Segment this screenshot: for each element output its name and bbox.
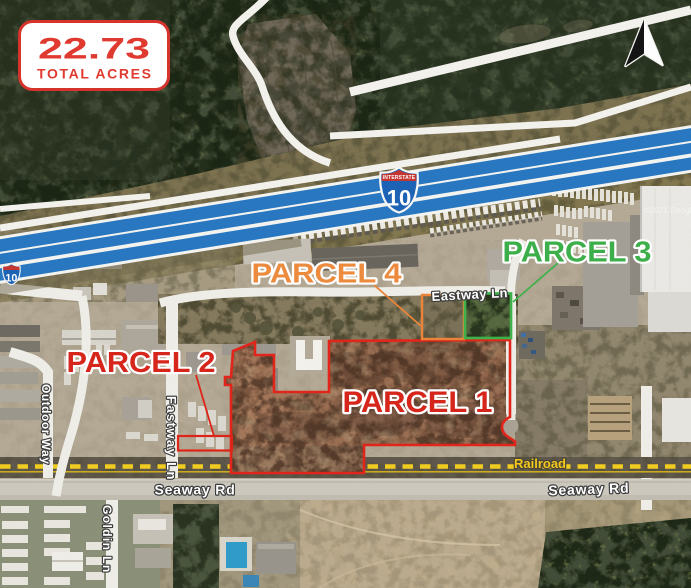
svg-text:PARCEL 4: PARCEL 4 <box>252 258 402 289</box>
svg-text:Seaway Rd: Seaway Rd <box>548 480 630 499</box>
svg-text:10: 10 <box>387 186 411 211</box>
svg-text:Goldin Ln: Goldin Ln <box>100 505 114 574</box>
svg-text:PARCEL 2: PARCEL 2 <box>67 347 216 379</box>
svg-text:PARCEL 1: PARCEL 1 <box>343 386 493 419</box>
svg-text:22.73: 22.73 <box>38 33 150 66</box>
svg-text:PARCEL 3: PARCEL 3 <box>503 237 652 269</box>
svg-text:Outdoor Way: Outdoor Way <box>39 384 53 464</box>
svg-text:Seaway Rd: Seaway Rd <box>154 482 235 498</box>
svg-text:10: 10 <box>5 272 17 284</box>
svg-text:Fastway Ln: Fastway Ln <box>164 396 179 481</box>
svg-text:Railroad: Railroad <box>514 456 566 471</box>
svg-text:INTERSTATE: INTERSTATE <box>383 175 416 181</box>
